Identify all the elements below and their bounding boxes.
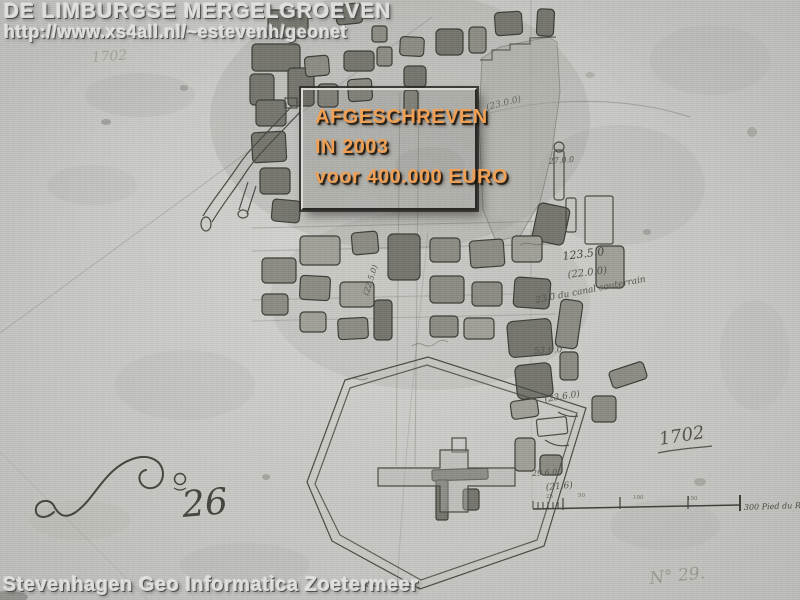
degree-mark [175,474,186,485]
cross-gallery [378,450,515,512]
stamp-line-2: IN 2003 [315,132,475,162]
scale-unit-label: 300 Pied du Rhin [744,501,800,512]
year-top-left: 1702 [91,48,128,66]
scale-tick-label: 150 [687,496,698,502]
annotation: 53.6.0 [534,345,564,357]
watermark-credit: Stevenhagen Geo Informatica Zoetermeer [3,574,419,597]
stamp-line-1: AFGESCHREVEN [315,102,475,132]
annotation: 29.6.0 [531,468,558,478]
plate-number-digits: 26 [179,481,229,526]
watermark-url: http://www.xs4all.nl/~estevenh/geonet [4,22,347,43]
scale-tick-label: 100 [633,495,644,501]
scanned-map-page: 25 50 100 150 300 Pied du Rhin (23.0.0) … [0,0,800,600]
plate-number-secondary: N° 29. [647,563,706,589]
plate-number-calligraphy: 26 [36,457,230,526]
stamp-line-3: voor 400.000 EURO [315,162,475,192]
writeoff-stamp-box: AFGESCHREVEN IN 2003 voor 400.000 EURO [301,88,477,210]
annotation: (21.6) [545,480,573,493]
scale-tick-label: 50 [578,493,585,499]
scale-tick-label: 25 [546,494,553,500]
watermark-title: DE LIMBURGSE MERGELGROEVEN [4,0,392,24]
year-right: 1702 [657,422,706,450]
